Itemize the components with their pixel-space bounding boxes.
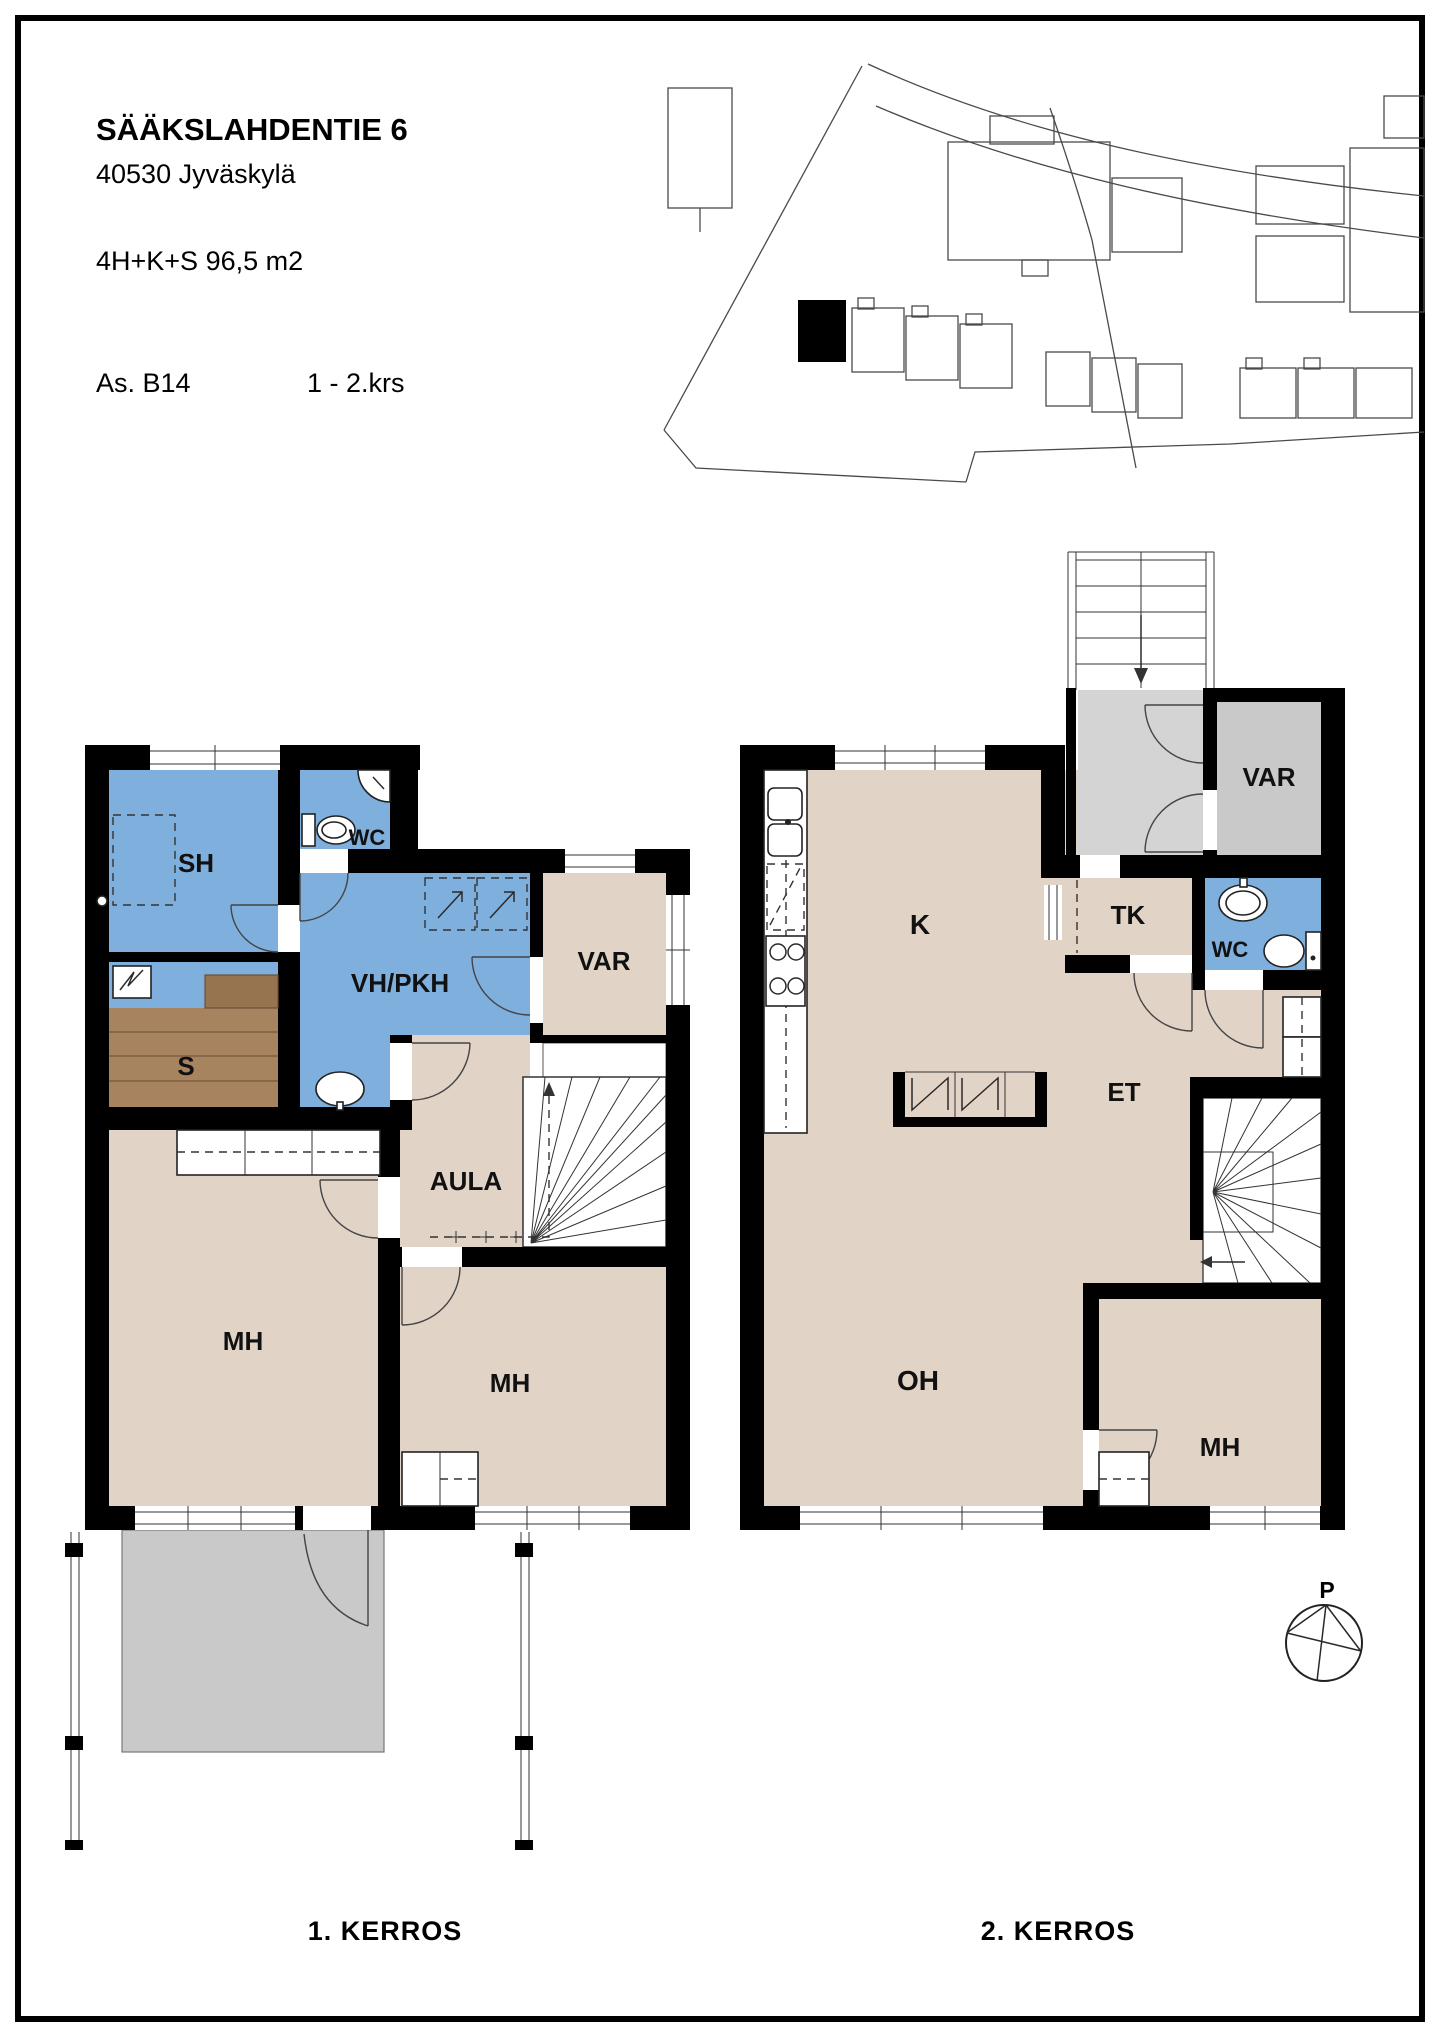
site-target-unit	[798, 300, 846, 362]
shower-head-icon	[97, 896, 107, 906]
label-mh2: MH	[1200, 1432, 1240, 1462]
patio	[122, 1530, 384, 1752]
label-et: ET	[1107, 1077, 1140, 1107]
label-sh: SH	[178, 848, 214, 878]
label-aula: AULA	[430, 1166, 502, 1196]
floor1-caption: 1. KERROS	[308, 1916, 463, 1946]
label-mh1-right: MH	[490, 1368, 530, 1398]
label-wc2: WC	[1212, 937, 1249, 962]
recess	[543, 1043, 666, 1077]
compass: P	[1286, 1577, 1362, 1681]
sauna-stove-icon	[113, 966, 151, 998]
label-tk: TK	[1111, 900, 1146, 930]
mh2-closet-nub	[1099, 1452, 1149, 1506]
floorplan-sheet: SÄÄKSLAHDENTIE 6 40530 Jyväskylä 4H+K+S …	[0, 0, 1440, 2037]
mh1-closets	[177, 1130, 380, 1175]
sauna-bench	[205, 975, 278, 1008]
label-k: K	[910, 909, 930, 940]
label-wc1: WC	[349, 825, 386, 850]
label-vh-pkh: VH/PKH	[351, 968, 449, 998]
stove-icon	[766, 936, 805, 1006]
floorplan-drawing: SÄÄKSLAHDENTIE 6 40530 Jyväskylä 4H+K+S …	[0, 0, 1440, 2037]
header: SÄÄKSLAHDENTIE 6 40530 Jyväskylä 4H+K+S …	[96, 112, 408, 398]
entry-landing	[1078, 690, 1203, 878]
label-mh1-left: MH	[223, 1326, 263, 1356]
external-stair	[1068, 552, 1214, 690]
postal-city: 40530 Jyväskylä	[96, 159, 297, 189]
floor2-caption: 2. KERROS	[981, 1916, 1136, 1946]
floor2-staircase	[1200, 1098, 1321, 1283]
wc2-toilet-icon	[1264, 932, 1321, 970]
compass-north-label: P	[1319, 1577, 1334, 1603]
label-var2: VAR	[1243, 762, 1296, 792]
site-plan	[664, 64, 1424, 482]
label-var1: VAR	[578, 946, 631, 976]
floor1-plan: SH WC VH/PKH VAR S AULA MH MH	[65, 745, 690, 1850]
label-sauna: S	[177, 1051, 194, 1081]
et-closets	[1283, 997, 1321, 1077]
street-address: SÄÄKSLAHDENTIE 6	[96, 112, 408, 147]
label-oh: OH	[897, 1365, 939, 1396]
apartment-id: As. B14	[96, 368, 191, 398]
stair-down-arrow	[1134, 668, 1148, 684]
apartment-summary: 4H+K+S 96,5 m2	[96, 246, 303, 276]
room-mh1-left	[109, 1130, 378, 1506]
floor2-plan: K TK WC VAR ET OH MH	[740, 552, 1345, 1530]
toilet-icon	[302, 814, 355, 846]
mh2-closet	[402, 1452, 478, 1506]
floor-range: 1 - 2.krs	[307, 368, 405, 398]
